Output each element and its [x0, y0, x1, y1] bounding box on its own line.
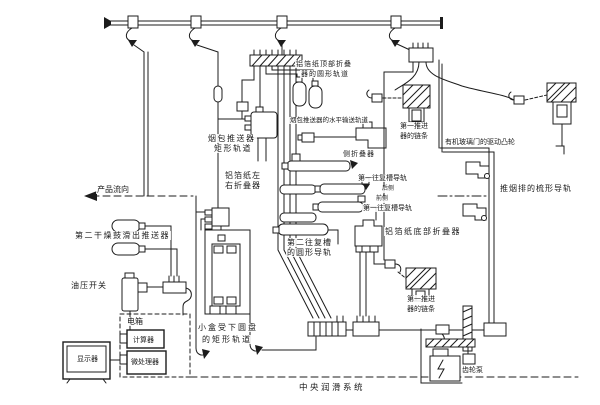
side-folder-label: 侧折叠器: [342, 150, 376, 158]
small-box-rail-label-1: 小盒受下圆盘: [197, 323, 259, 332]
foil-top-folder-label-1: 铝箔纸顶部折叠: [295, 60, 353, 68]
oil-pressure-switch-label: 油压开关: [70, 281, 108, 290]
pusher-chain-bottom-label-1: 第一推进: [406, 295, 436, 303]
computer-label: 计算器: [132, 336, 155, 344]
front-side-label: 前侧: [375, 196, 389, 203]
pack-pusher-rail-label-1: 烟包推送器: [207, 134, 257, 143]
pack-pusher-rail-label-2: 矩形轨道: [213, 144, 253, 153]
lubrication-system-diagram: 产品流向 第二干燥鼓滑出推送器 油压开关 电箱 计算器 微处理器 显示器 小盒受…: [0, 0, 600, 405]
door-cam-label: 有机玻璃门的驱动凸轮: [444, 138, 516, 146]
microprocessor-label: 微处理器: [130, 358, 160, 366]
recip-rail-rear-label: 第一往复槽导轨: [357, 174, 408, 182]
small-box-rail-label-2: 的矩形轨道: [201, 335, 253, 344]
rear-side-label: 后侧: [381, 186, 395, 193]
foil-lr-folder-label-1: 铝箔纸左: [224, 171, 262, 180]
foil-top-folder-label-2: 器的圆形轨道: [300, 70, 350, 78]
recip-rail-front-label: 第一往复槽导轨: [362, 204, 413, 212]
door-cam-block: [463, 204, 487, 221]
electric-box-label: 电箱: [126, 317, 144, 326]
junction-block-center: [353, 252, 464, 336]
comb-rail-label: 推烟排的梳形导轨: [499, 184, 573, 193]
door-cam-block: [466, 162, 490, 179]
secondary-manifold: [308, 316, 353, 336]
dryer-pusher-label: 第二干燥鼓滑出推送器: [74, 231, 171, 240]
side-folder-block: [298, 122, 386, 148]
pusher-chain-top-label-1: 第一推进: [399, 122, 429, 130]
second-recip-label-2: 的圆形导轨: [286, 248, 333, 257]
display-label: 显示器: [76, 355, 99, 363]
pusher-chain-top-label-2: 器的链条: [399, 132, 429, 140]
product-flow-label: 产品流向: [96, 185, 130, 194]
second-recip-label-1: 第二往复槽: [286, 238, 333, 247]
right-riser: [439, 60, 506, 336]
pusher-chain-bottom-label-2: 器的链条: [406, 305, 436, 313]
diagram-caption: 中央润滑系统: [298, 384, 366, 394]
foil-lr-distributor: [196, 208, 229, 230]
top-right-distributor: [367, 43, 514, 102]
oil-reservoir-cylinders: [293, 77, 322, 108]
horizontal-conveyor-label: 烟包推送器的水平输送轨道: [289, 117, 369, 124]
foil-bottom-folder-label: 铝箔纸底部折叠器: [384, 227, 462, 236]
dryer-pusher-cylinders: [112, 220, 177, 276]
right-lube-cluster: [509, 83, 576, 154]
foil-lr-folder-label-2: 右折叠器: [224, 181, 262, 190]
gear-pump-label: 齿轮泵: [461, 366, 484, 374]
junction-block-left: [163, 276, 191, 315]
left-feed-pipe: [144, 52, 148, 196]
chain-lube-point-top: [403, 85, 430, 122]
lube-point-icon: [275, 16, 287, 57]
